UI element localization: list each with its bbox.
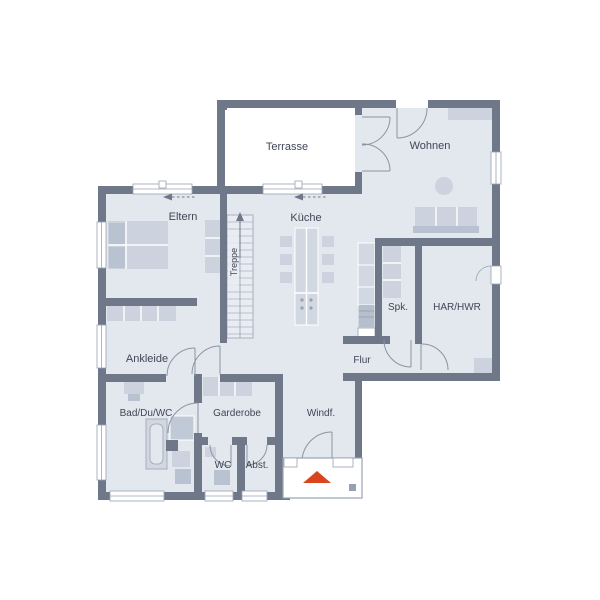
room-label-abst: Abst. bbox=[246, 460, 269, 471]
room-label-bad-du-wc: Bad/Du/WC bbox=[120, 408, 173, 419]
wardrobe-eltern bbox=[107, 306, 176, 321]
round-table bbox=[435, 177, 453, 195]
sideboard bbox=[448, 108, 492, 120]
floor-plan-page: Treppe bbox=[0, 0, 600, 600]
window-bad-west bbox=[97, 425, 106, 480]
room-label-flur: Flur bbox=[353, 355, 371, 366]
window-wohnen-east bbox=[491, 152, 501, 184]
terrace-corner-marker bbox=[221, 104, 227, 110]
floor-plan-drawing: Treppe bbox=[0, 0, 600, 600]
window-wc-south bbox=[205, 491, 233, 501]
room-label-har-hwr: HAR/HWR bbox=[433, 302, 481, 313]
window-abst-south bbox=[242, 491, 267, 501]
kitchen-island bbox=[295, 228, 318, 325]
window-eltern-north bbox=[133, 181, 192, 194]
plumbing-wall-stub bbox=[166, 440, 178, 451]
entrance-side-panel bbox=[284, 458, 297, 467]
room-label-wohnen: Wohnen bbox=[410, 140, 451, 152]
room-label-kueche: Küche bbox=[290, 212, 321, 224]
washbasin bbox=[124, 382, 144, 394]
window-bad-south bbox=[110, 491, 164, 501]
kitchen-counter bbox=[358, 243, 375, 340]
room-label-ankleide: Ankleide bbox=[126, 353, 168, 365]
tall-cabinet bbox=[205, 220, 220, 273]
room-label-garderobe: Garderobe bbox=[213, 408, 261, 419]
toilet bbox=[175, 469, 191, 484]
window-kueche-north bbox=[263, 181, 322, 194]
pantry-shelves bbox=[383, 246, 401, 298]
room-label-eltern: Eltern bbox=[169, 211, 198, 223]
sofa bbox=[413, 207, 479, 233]
wc-toilet bbox=[214, 470, 230, 485]
stairs: Treppe bbox=[227, 212, 253, 338]
bed bbox=[108, 221, 168, 269]
room-label-wc: WC bbox=[215, 460, 232, 471]
entrance-side-panel bbox=[333, 458, 353, 467]
room-label-treppe: Treppe bbox=[229, 248, 239, 276]
window-eltern-west bbox=[97, 222, 106, 268]
room-label-windfang: Windf. bbox=[307, 408, 335, 419]
window-ankleide-west bbox=[97, 325, 106, 368]
porch-corner-marker bbox=[349, 484, 356, 491]
washbasin-2 bbox=[172, 451, 190, 467]
shower bbox=[170, 416, 194, 440]
entrance-porch bbox=[283, 458, 362, 498]
room-label-spk: Spk. bbox=[388, 302, 408, 313]
bathtub bbox=[146, 419, 167, 469]
room-label-terrasse: Terrasse bbox=[266, 141, 308, 153]
